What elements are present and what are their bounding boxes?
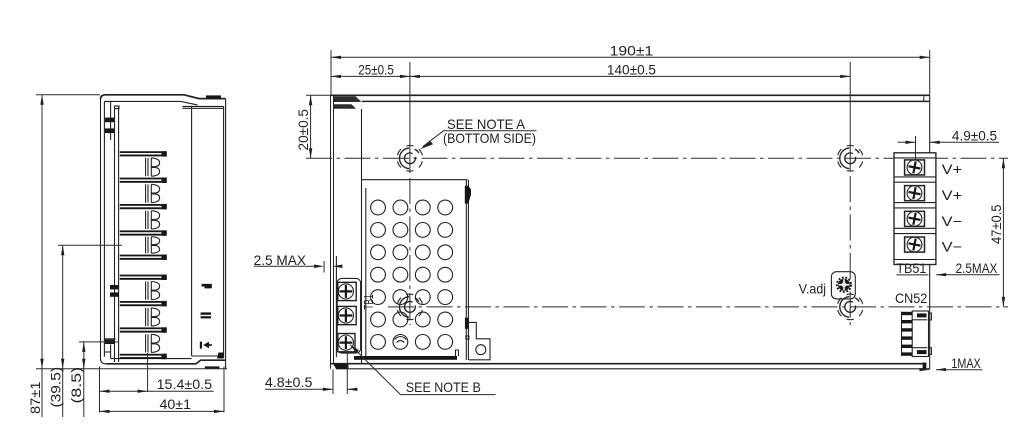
svg-text:TB51: TB51 xyxy=(896,260,926,276)
svg-text:20±0.5: 20±0.5 xyxy=(295,109,311,151)
svg-text:V.adj: V.adj xyxy=(799,281,826,297)
svg-text:TB1: TB1 xyxy=(361,295,376,310)
svg-text:2.5 MAX: 2.5 MAX xyxy=(254,252,307,268)
svg-text:87±1: 87±1 xyxy=(27,381,43,414)
svg-text:CN52: CN52 xyxy=(895,290,927,306)
svg-text:(39.5): (39.5) xyxy=(48,367,64,408)
svg-text:190±1: 190±1 xyxy=(610,43,654,59)
svg-text:V+: V+ xyxy=(942,161,963,177)
svg-text:140±0.5: 140±0.5 xyxy=(607,61,656,77)
svg-text:1MAX: 1MAX xyxy=(951,355,981,371)
svg-text:4.9±0.5: 4.9±0.5 xyxy=(952,128,997,144)
svg-text:2.5MAX: 2.5MAX xyxy=(956,260,998,276)
svg-text:V−: V− xyxy=(942,239,963,255)
svg-text:40±1: 40±1 xyxy=(160,396,192,412)
svg-text:V−: V− xyxy=(942,213,963,229)
svg-text:25±0.5: 25±0.5 xyxy=(358,61,394,77)
svg-text:47±0.5: 47±0.5 xyxy=(988,204,1004,244)
svg-text:4.8±0.5: 4.8±0.5 xyxy=(265,374,313,390)
svg-text:SEE NOTE B: SEE NOTE B xyxy=(406,379,481,395)
svg-text:V+: V+ xyxy=(942,187,963,203)
svg-text:(BOTTOM SIDE): (BOTTOM SIDE) xyxy=(443,130,536,146)
svg-text:15.4±0.5: 15.4±0.5 xyxy=(157,376,213,392)
svg-text:(8.5): (8.5) xyxy=(68,367,84,404)
